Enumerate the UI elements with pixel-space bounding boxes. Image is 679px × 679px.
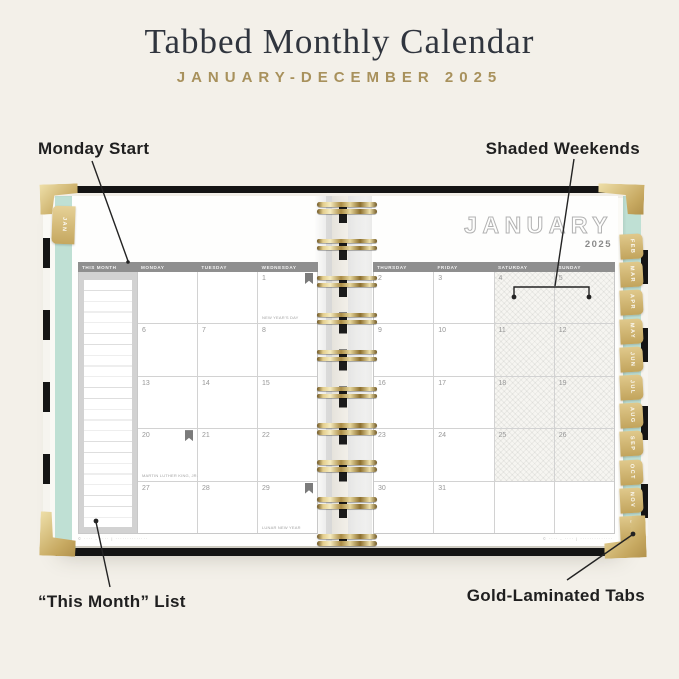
month-tab-may: MAY xyxy=(619,318,643,344)
day-cell-23: 23 xyxy=(374,429,433,480)
planner-cover-bottom-edge xyxy=(54,548,624,556)
page-title: Tabbed Monthly Calendar xyxy=(0,22,679,62)
day-cell-5: 5 xyxy=(555,272,614,323)
binding-coil xyxy=(317,534,377,546)
date-number: 10 xyxy=(438,327,446,334)
date-number: 23 xyxy=(378,432,386,439)
date-number: 24 xyxy=(438,432,446,439)
day-cell-2: 2 xyxy=(374,272,433,323)
day-cell-8: 8 xyxy=(258,324,317,375)
binding-coil xyxy=(317,239,377,251)
day-cell-12: 12 xyxy=(555,324,614,375)
weeks-grid: 1NEW YEAR'S DAY67813141520MARTIN LUTHER … xyxy=(138,272,317,533)
month-tab-label: MAY xyxy=(619,318,643,344)
date-number: 29 xyxy=(262,485,270,492)
date-number: 15 xyxy=(262,380,270,387)
month-tab-jun: JUN xyxy=(619,346,643,372)
holiday-label: NEW YEAR'S DAY xyxy=(262,315,299,320)
date-number: 4 xyxy=(499,275,503,282)
binding-coil xyxy=(317,497,377,509)
date-number: 27 xyxy=(142,485,150,492)
month-tab-label: SEP xyxy=(619,431,643,457)
holiday-flag-icon xyxy=(305,273,313,284)
month-tab-label: NOV xyxy=(619,487,643,513)
grid-body: 1NEW YEAR'S DAY67813141520MARTIN LUTHER … xyxy=(78,272,318,534)
binding-coil xyxy=(317,423,377,435)
callout-shaded-weekends: Shaded Weekends xyxy=(486,139,640,159)
day-cell-25: 25 xyxy=(495,429,554,480)
binding-coil xyxy=(317,460,377,472)
date-number: 16 xyxy=(378,380,386,387)
date-number: 18 xyxy=(499,380,507,387)
day-header: SATURDAY xyxy=(494,262,555,272)
day-header: WEDNESDAY xyxy=(258,262,318,272)
day-cell-15: 15 xyxy=(258,377,317,428)
month-tab-label: JUL xyxy=(619,374,643,400)
holiday-flag-icon xyxy=(305,483,313,494)
weeks-grid: 2345910111216171819232425263031 xyxy=(374,272,614,533)
day-cell-empty xyxy=(495,482,554,533)
day-header: SUNDAY xyxy=(555,262,616,272)
day-cell-13: 13 xyxy=(138,377,197,428)
binding-coil xyxy=(317,313,377,325)
date-number: 11 xyxy=(499,327,506,334)
day-cell-11: 11 xyxy=(495,324,554,375)
callout-gold-laminated-tabs: Gold-Laminated Tabs xyxy=(467,586,645,606)
day-cell-19: 19 xyxy=(555,377,614,428)
day-header: THURSDAY xyxy=(373,262,434,272)
day-cell-29: 29LUNAR NEW YEAR xyxy=(258,482,317,533)
day-cell-6: 6 xyxy=(138,324,197,375)
holiday-label: LUNAR NEW YEAR xyxy=(262,525,301,530)
day-cell-empty xyxy=(138,272,197,323)
day-header: THIS MONTH xyxy=(78,262,137,272)
page-footer-left: © ···· - ···· | ·············· xyxy=(78,536,148,541)
date-number: 7 xyxy=(202,327,206,334)
day-header: TUESDAY xyxy=(197,262,257,272)
date-number: 1 xyxy=(262,275,266,282)
page-subtitle: JANUARY-DECEMBER 2025 xyxy=(0,69,679,86)
date-number: 28 xyxy=(202,485,210,492)
date-number: 12 xyxy=(559,327,567,334)
date-number: 30 xyxy=(378,485,386,492)
month-tab-aug: AUG xyxy=(619,403,643,429)
date-number: 20 xyxy=(142,432,150,439)
date-number: 14 xyxy=(202,380,210,387)
day-cell-9: 9 xyxy=(374,324,433,375)
day-header: FRIDAY xyxy=(434,262,495,272)
date-number: 8 xyxy=(262,327,266,334)
day-cell-empty xyxy=(555,482,614,533)
date-number: 9 xyxy=(378,327,382,334)
date-number: 31 xyxy=(438,485,446,492)
date-number: 13 xyxy=(142,380,150,387)
striped-cover-edge-left xyxy=(43,238,50,534)
date-number: 21 xyxy=(202,432,210,439)
day-cell-3: 3 xyxy=(434,272,493,323)
day-cell-28: 28 xyxy=(198,482,257,533)
day-cell-27: 27 xyxy=(138,482,197,533)
day-cell-31: 31 xyxy=(434,482,493,533)
day-cell-20: 20MARTIN LUTHER KING, JR. DAY xyxy=(138,429,197,480)
callout-monday-start: Monday Start xyxy=(38,139,149,159)
day-cell-30: 30 xyxy=(374,482,433,533)
month-tab-label: MAR xyxy=(619,262,643,288)
binding-coil xyxy=(317,350,377,362)
grid-body: 2345910111216171819232425263031 xyxy=(373,272,615,534)
date-number: 3 xyxy=(438,275,442,282)
date-number: 26 xyxy=(559,432,567,439)
month-tab-label: OCT xyxy=(619,459,643,485)
month-tab-jan: JAN xyxy=(51,206,75,245)
day-cell-empty xyxy=(198,272,257,323)
month-tab-apr: APR xyxy=(619,290,643,316)
month-grid-left: THIS MONTHMONDAYTUESDAYWEDNESDAY1NEW YEA… xyxy=(78,262,318,534)
product-feature-image: Tabbed Monthly Calendar JANUARY-DECEMBER… xyxy=(0,0,679,679)
day-cell-17: 17 xyxy=(434,377,493,428)
binding-coil xyxy=(317,276,377,288)
month-tab-label: AUG xyxy=(619,403,643,429)
callout-this-month-list: “This Month” List xyxy=(38,592,186,612)
year-label: 2025 xyxy=(585,239,612,250)
day-cell-18: 18 xyxy=(495,377,554,428)
day-header-row: THURSDAYFRIDAYSATURDAYSUNDAY xyxy=(373,262,615,272)
planner-cover-top-edge xyxy=(56,186,622,193)
day-cell-22: 22 xyxy=(258,429,317,480)
date-number: 25 xyxy=(499,432,507,439)
day-cell-1: 1NEW YEAR'S DAY xyxy=(258,272,317,323)
month-tab-label: APR xyxy=(619,290,643,316)
day-header: MONDAY xyxy=(137,262,197,272)
date-number: 19 xyxy=(559,380,567,387)
day-cell-4: 4 xyxy=(495,272,554,323)
this-month-list-column xyxy=(79,272,138,533)
holiday-flag-icon xyxy=(185,430,193,441)
month-tab-jul: JUL xyxy=(619,374,643,400)
day-cell-24: 24 xyxy=(434,429,493,480)
month-tab-label: FEB xyxy=(619,233,643,259)
month-tab-feb: FEB xyxy=(619,233,643,259)
date-number: 6 xyxy=(142,327,146,334)
page-footer-right: © ···· - ···· | ·············· xyxy=(543,536,613,541)
day-cell-10: 10 xyxy=(434,324,493,375)
month-tab-mar: MAR xyxy=(619,262,643,288)
date-number: 17 xyxy=(438,380,446,387)
binding-coil xyxy=(317,202,377,214)
day-cell-21: 21 xyxy=(198,429,257,480)
date-number: 22 xyxy=(262,432,270,439)
month-tab-oct: OCT xyxy=(619,459,643,485)
month-tab-label: JUN xyxy=(619,346,643,372)
month-tab-nov: NOV xyxy=(619,487,643,513)
spiral-spine xyxy=(339,202,347,542)
date-number: 5 xyxy=(559,275,563,282)
day-header-row: THIS MONTHMONDAYTUESDAYWEDNESDAY xyxy=(78,262,318,272)
day-cell-14: 14 xyxy=(198,377,257,428)
binding-coil xyxy=(317,387,377,399)
month-tab-sep: SEP xyxy=(619,431,643,457)
month-title: JANUARY xyxy=(464,212,613,239)
day-cell-7: 7 xyxy=(198,324,257,375)
date-number: 2 xyxy=(378,275,382,282)
day-cell-16: 16 xyxy=(374,377,433,428)
month-grid-right: THURSDAYFRIDAYSATURDAYSUNDAY234591011121… xyxy=(373,262,615,534)
day-cell-26: 26 xyxy=(555,429,614,480)
